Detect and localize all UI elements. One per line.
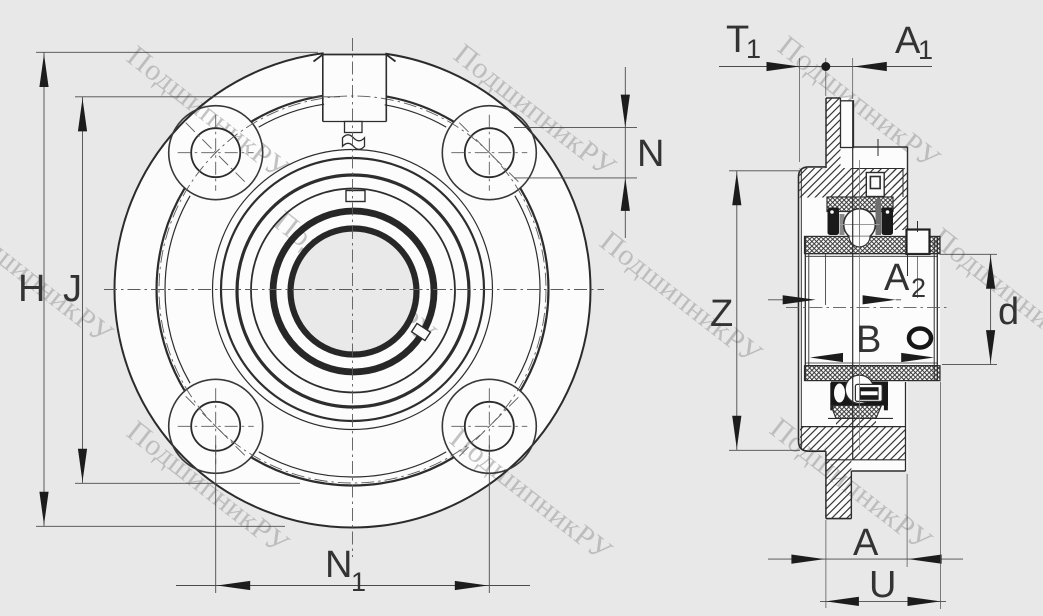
svg-text:2: 2: [911, 273, 926, 303]
svg-text:H: H: [18, 268, 45, 310]
svg-text:1: 1: [918, 35, 933, 65]
svg-text:U: U: [869, 564, 896, 606]
svg-text:A: A: [853, 522, 879, 564]
svg-text:d: d: [998, 291, 1019, 333]
svg-text:J: J: [63, 268, 82, 310]
svg-text:A: A: [884, 257, 910, 299]
svg-text:B: B: [856, 319, 881, 361]
svg-text:N: N: [637, 133, 664, 175]
svg-text:Z: Z: [710, 293, 733, 335]
svg-text:1: 1: [746, 34, 761, 64]
svg-text:N: N: [325, 544, 352, 586]
svg-text:1: 1: [351, 567, 366, 597]
